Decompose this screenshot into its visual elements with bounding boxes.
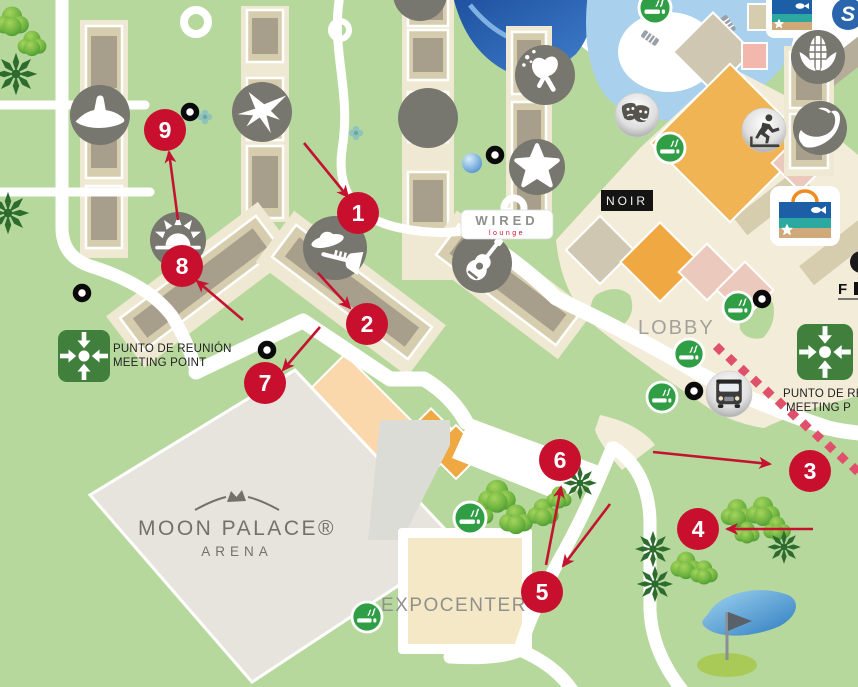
pool-dot xyxy=(462,153,482,173)
noir-label: NOIR xyxy=(606,194,648,208)
smoking-area-icon xyxy=(647,382,677,412)
map-marker-4: 4 xyxy=(677,508,719,550)
starfish-icon xyxy=(509,139,565,195)
marker-number: 2 xyxy=(361,311,374,337)
chili-icon xyxy=(793,101,847,155)
meeting-point-left-label-2: MEETING POINT xyxy=(113,357,206,369)
location-dot xyxy=(489,149,502,162)
meeting-point-icon-left xyxy=(58,330,110,382)
map-marker-6: 6 xyxy=(539,439,581,481)
meeting-point-icon-right xyxy=(797,324,853,380)
flag-logo-letter: F xyxy=(838,281,847,298)
marker-number: 8 xyxy=(176,253,189,279)
map-marker-3: 3 xyxy=(789,450,831,492)
location-dot xyxy=(756,293,769,306)
wired-label: WIRED xyxy=(475,213,538,228)
marker-number: 9 xyxy=(159,117,172,143)
marker-number: 7 xyxy=(259,370,272,396)
meeting-point-right-label-2: MEETING P xyxy=(786,402,851,414)
map-marker-7: 7 xyxy=(244,362,286,404)
map-marker-5: 5 xyxy=(521,571,563,613)
smoking-area-icon xyxy=(723,292,753,322)
lobby-label: LOBBY xyxy=(638,317,715,339)
corn-icon xyxy=(791,30,845,84)
location-dot xyxy=(688,385,701,398)
resort-map: S xyxy=(0,0,858,687)
sombrero-icon xyxy=(70,85,130,145)
arena-title: MOON PALACE® xyxy=(138,517,336,540)
arena-subtitle: ARENA xyxy=(201,544,273,559)
marker-number: 5 xyxy=(536,579,549,605)
wired-sub-label: lounge xyxy=(489,230,525,237)
location-dot xyxy=(261,344,274,357)
location-dot xyxy=(184,106,197,119)
marker-number: 3 xyxy=(804,458,817,484)
meeting-point-left-label-1: PUNTO DE REUNIÓN xyxy=(113,342,232,355)
marker-number: 4 xyxy=(692,516,705,542)
marker-number: 1 xyxy=(352,200,365,226)
smoking-area-icon xyxy=(674,339,704,369)
map-marker-9: 9 xyxy=(144,109,186,151)
gym-runner-icon xyxy=(742,108,786,152)
bird-icon xyxy=(232,82,292,142)
marker-number: 6 xyxy=(554,447,567,473)
noir-sign: NOIR xyxy=(601,190,653,211)
theater-masks-icon xyxy=(615,93,659,137)
smoking-area-icon xyxy=(352,602,382,632)
expocenter-label: EXPOCENTER xyxy=(381,595,527,616)
beach-bag-icon xyxy=(770,186,840,246)
smoking-area-icon xyxy=(655,133,685,163)
location-dot xyxy=(76,287,89,300)
wired-lounge-sign: WIRED lounge xyxy=(461,210,553,239)
crescent-moon-icon xyxy=(398,88,458,148)
map-marker-2: 2 xyxy=(346,303,388,345)
meeting-point-right-label-1: PUNTO DE RE xyxy=(783,388,858,400)
bus-icon xyxy=(706,371,752,417)
smoking-area-icon xyxy=(454,502,486,534)
guitar-icon xyxy=(452,233,512,293)
map-marker-8: 8 xyxy=(161,245,203,287)
smoking-area-icon xyxy=(639,0,671,24)
map-marker-1: 1 xyxy=(337,192,379,234)
maracas-icon xyxy=(515,45,575,105)
